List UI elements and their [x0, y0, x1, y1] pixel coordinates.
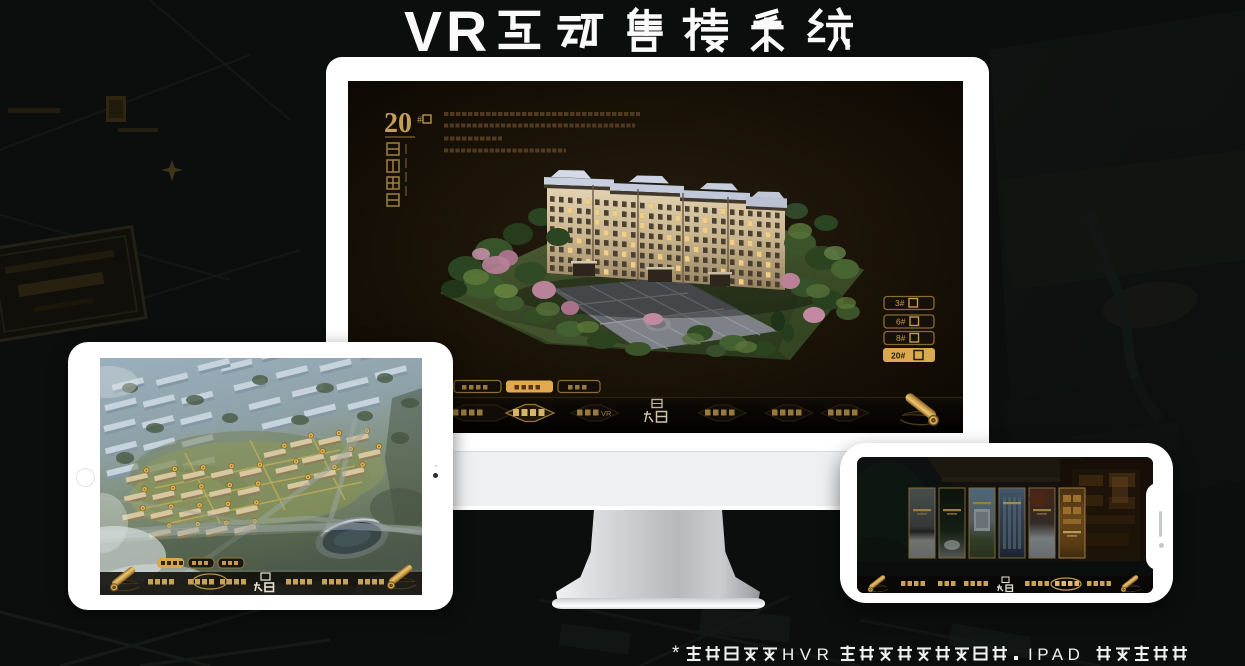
svg-text:#: #: [417, 115, 422, 126]
svg-text:VR: VR: [601, 409, 612, 418]
svg-text:3#: 3#: [895, 298, 905, 308]
svg-text:20: 20: [384, 108, 412, 139]
svg-text:*: *: [672, 643, 680, 664]
svg-text:8#: 8#: [896, 333, 906, 343]
svg-text:6#: 6#: [896, 317, 906, 327]
svg-text:HVR: HVR: [782, 645, 834, 664]
svg-text:VR: VR: [404, 0, 491, 60]
svg-text:20#: 20#: [891, 351, 905, 361]
svg-text:IPAD: IPAD: [1028, 645, 1084, 664]
